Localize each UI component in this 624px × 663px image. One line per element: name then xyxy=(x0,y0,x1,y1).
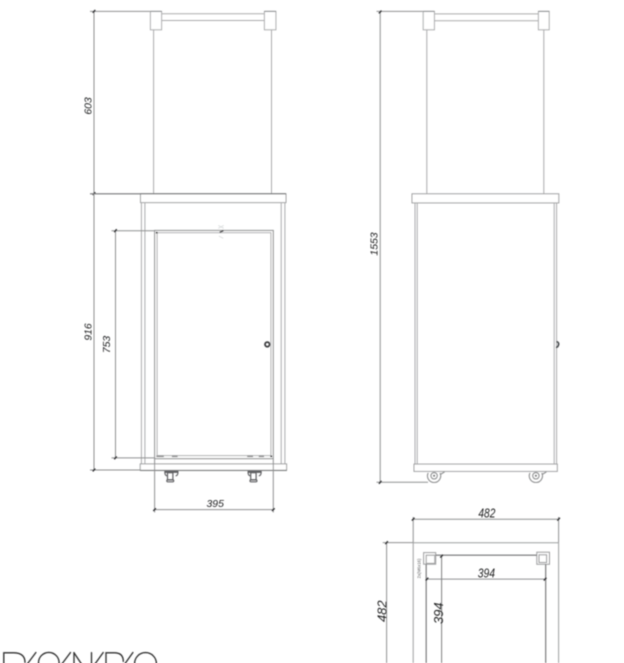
svg-text:394: 394 xyxy=(478,565,495,580)
svg-text:753: 753 xyxy=(102,336,113,354)
svg-text:1553: 1553 xyxy=(369,232,380,255)
svg-text:394: 394 xyxy=(431,602,446,624)
svg-text:916: 916 xyxy=(83,323,94,341)
svg-text:603: 603 xyxy=(83,97,94,115)
svg-text:395: 395 xyxy=(207,499,225,510)
svg-text:482: 482 xyxy=(478,505,496,520)
svg-text:2x(M6x16): 2x(M6x16) xyxy=(417,558,422,578)
svg-text:482: 482 xyxy=(374,600,389,622)
